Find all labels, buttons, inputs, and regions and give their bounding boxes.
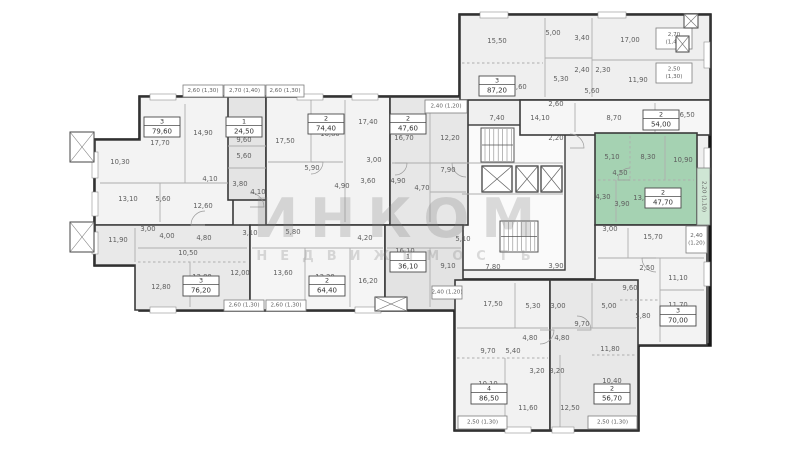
room-area-label: 4,00: [159, 232, 174, 240]
room-area-label: 14,90: [193, 129, 212, 137]
unit-rooms-count: 2: [659, 110, 663, 118]
room-area-label: 9,70: [480, 347, 495, 355]
room-area-label: 3,90: [614, 200, 629, 208]
balcony-area-label: 2,40 (1,20): [431, 290, 462, 296]
window-opening: [92, 192, 98, 216]
room-area-label: 12,50: [560, 404, 579, 412]
room-area-label: 5,60: [236, 152, 251, 160]
room-area-label: 5,80: [285, 228, 300, 236]
room-area-label: 10,90: [673, 156, 692, 164]
room-area-label: 13,60: [273, 269, 292, 277]
room-area-label: 14,10: [530, 114, 549, 122]
room-area-label: 12,60: [193, 202, 212, 210]
unit-total-area: 54,00: [651, 121, 671, 129]
room-area-label: 4,10: [250, 188, 265, 196]
room-area-label: 11,90: [628, 76, 647, 84]
room-area-label: 5,40: [505, 347, 520, 355]
room-area-label: 7,40: [489, 114, 504, 122]
room-area-label: 17,70: [150, 139, 169, 147]
unit-total-area: 36,10: [398, 263, 418, 271]
floorplan-svg: 2,60 (1,30)2,70 (1,40)2,60 (1,30)2,40 (1…: [0, 0, 800, 450]
window-opening: [704, 262, 710, 286]
room-area-label: 4,90: [390, 177, 405, 185]
room-area-label: 11,10: [668, 274, 687, 282]
balcony-area-label: 2,40: [690, 233, 703, 239]
room-area-label: 5,60: [155, 195, 170, 203]
room-area-label: 7,80: [485, 263, 500, 271]
room-area-label: 5,30: [553, 75, 568, 83]
room-area-label: 5,60: [584, 87, 599, 95]
room-area-label: 5,00: [601, 302, 616, 310]
balcony-area-label: 2,20 (1,10): [701, 181, 707, 212]
room-area-label: 4,20: [357, 234, 372, 242]
room-area-label: 13,10: [118, 195, 137, 203]
room-area-label: 3,00: [140, 225, 155, 233]
room-area-label: 17,50: [483, 300, 502, 308]
room-area-label: 2,30: [595, 66, 610, 74]
room-area-label: 10,30: [110, 158, 129, 166]
window-opening: [150, 307, 176, 313]
unit-total-area: 47,60: [398, 125, 418, 133]
room-area-label: 3,00: [550, 302, 565, 310]
room-area-label: 3,10: [242, 229, 257, 237]
room-area-label: 11,90: [108, 236, 127, 244]
room-area-label: 15,50: [487, 37, 506, 45]
room-area-label: 5,30: [525, 302, 540, 310]
unit-rooms-count: 3: [495, 76, 499, 84]
unit-rooms-count: 2: [324, 114, 328, 122]
room-area-label: 5,90: [304, 164, 319, 172]
unit-total-area: 87,20: [487, 87, 507, 95]
room-area-label: 2,50: [639, 264, 654, 272]
unit-rooms-count: 1: [242, 117, 246, 125]
balcony-area-label: 2,60 (1,30): [187, 88, 218, 94]
room-area-label: 15,70: [643, 233, 662, 241]
unit-total-area: 24,50: [234, 128, 254, 136]
room-area-label: 16,20: [358, 277, 377, 285]
room-area-label: 12,00: [230, 269, 249, 277]
unit-rooms-count: 2: [610, 384, 614, 392]
room-area-label: 3,00: [602, 225, 617, 233]
unit-total-area: 56,70: [602, 395, 622, 403]
balcony-area-label: 2,40 (1,20): [430, 104, 461, 110]
window-opening: [352, 94, 378, 100]
room-area-label: 5,00: [545, 29, 560, 37]
window-opening: [505, 427, 531, 433]
room-area-label: 17,50: [275, 137, 294, 145]
unit-total-area: 70,00: [668, 317, 688, 325]
balcony-area-label: 2,60 (1,30): [270, 303, 301, 309]
room-area-label: 5,10: [455, 235, 470, 243]
balcony-area-label: 2,60 (1,30): [228, 303, 259, 309]
balcony-area-label: (1,20): [688, 240, 705, 246]
room-area-label: 4,70: [414, 184, 429, 192]
unit-rooms-count: 2: [325, 276, 329, 284]
room-area-label: 5,80: [635, 312, 650, 320]
room-area-label: 3,40: [574, 34, 589, 42]
balcony-area-label: 2,70 (1,40): [229, 88, 260, 94]
floorplan-canvas: 2,60 (1,30)2,70 (1,40)2,60 (1,30)2,40 (1…: [0, 0, 800, 450]
room-area-label: 4,80: [196, 234, 211, 242]
room-area-label: 2,20: [548, 134, 563, 142]
room-area-label: 4,50: [612, 169, 627, 177]
unit-total-area: 76,20: [191, 287, 211, 295]
room-area-label: 3,60: [360, 177, 375, 185]
room-area-label: 3,00: [366, 156, 381, 164]
window-opening: [150, 94, 176, 100]
balcony-area-label: 2,50 (1,30): [597, 420, 628, 426]
unit-rooms-count: 1: [406, 252, 410, 260]
room-area-label: 2,60: [548, 100, 563, 108]
unit-total-area: 64,40: [317, 287, 337, 295]
room-area-label: 11,80: [600, 345, 619, 353]
room-area-label: 17,40: [358, 118, 377, 126]
room-area-label: 12,20: [440, 134, 459, 142]
room-area-label: 3,20: [549, 367, 564, 375]
window-opening: [598, 12, 626, 18]
room-area-label: 8,30: [640, 153, 655, 161]
unit-rooms-count: 2: [661, 188, 665, 196]
room-area-label: 9,10: [440, 262, 455, 270]
balcony-area-label: 2,50: [668, 67, 681, 73]
room-area-label: 5,10: [604, 153, 619, 161]
unit-rooms-count: 4: [487, 384, 491, 392]
unit-rooms-count: 2: [406, 114, 410, 122]
unit-total-area: 47,70: [653, 199, 673, 207]
balcony-area-label: (1,30): [666, 74, 683, 80]
room-area-label: 4,10: [202, 175, 217, 183]
room-area-label: 3,80: [232, 180, 247, 188]
room-area-label: 10,50: [178, 249, 197, 257]
unit-rooms-count: 3: [676, 306, 680, 314]
room-area-label: 16,70: [394, 134, 413, 142]
window-opening: [704, 42, 710, 68]
unit-total-area: 74,40: [316, 125, 336, 133]
room-area-label: 9,60: [622, 284, 637, 292]
room-area-label: 7,90: [440, 166, 455, 174]
room-area-label: 3,20: [529, 367, 544, 375]
room-area-label: 3,90: [548, 262, 563, 270]
room-area-label: 8,70: [606, 114, 621, 122]
room-area-label: 4,80: [554, 334, 569, 342]
room-area-label: 4,90: [334, 182, 349, 190]
room-area-label: 9,70: [574, 320, 589, 328]
room-area-label: 4,80: [522, 334, 537, 342]
balcony-area-label: 2,50 (1,30): [467, 420, 498, 426]
unit-47-70-selected[interactable]: [595, 133, 697, 225]
balcony-area-label: 2,60 (1,30): [269, 88, 300, 94]
room-area-label: 11,60: [518, 404, 537, 412]
unit-rooms-count: 3: [160, 117, 164, 125]
room-area-label: 4,30: [595, 193, 610, 201]
window-opening: [552, 427, 574, 433]
unit-total-area: 86,50: [479, 395, 499, 403]
room-area-label: 17,00: [620, 36, 639, 44]
window-opening: [480, 12, 508, 18]
unit-total-area: 79,60: [152, 128, 172, 136]
unit-rooms-count: 3: [199, 276, 203, 284]
room-area-label: 2,40: [574, 66, 589, 74]
room-area-label: 12,80: [151, 283, 170, 291]
